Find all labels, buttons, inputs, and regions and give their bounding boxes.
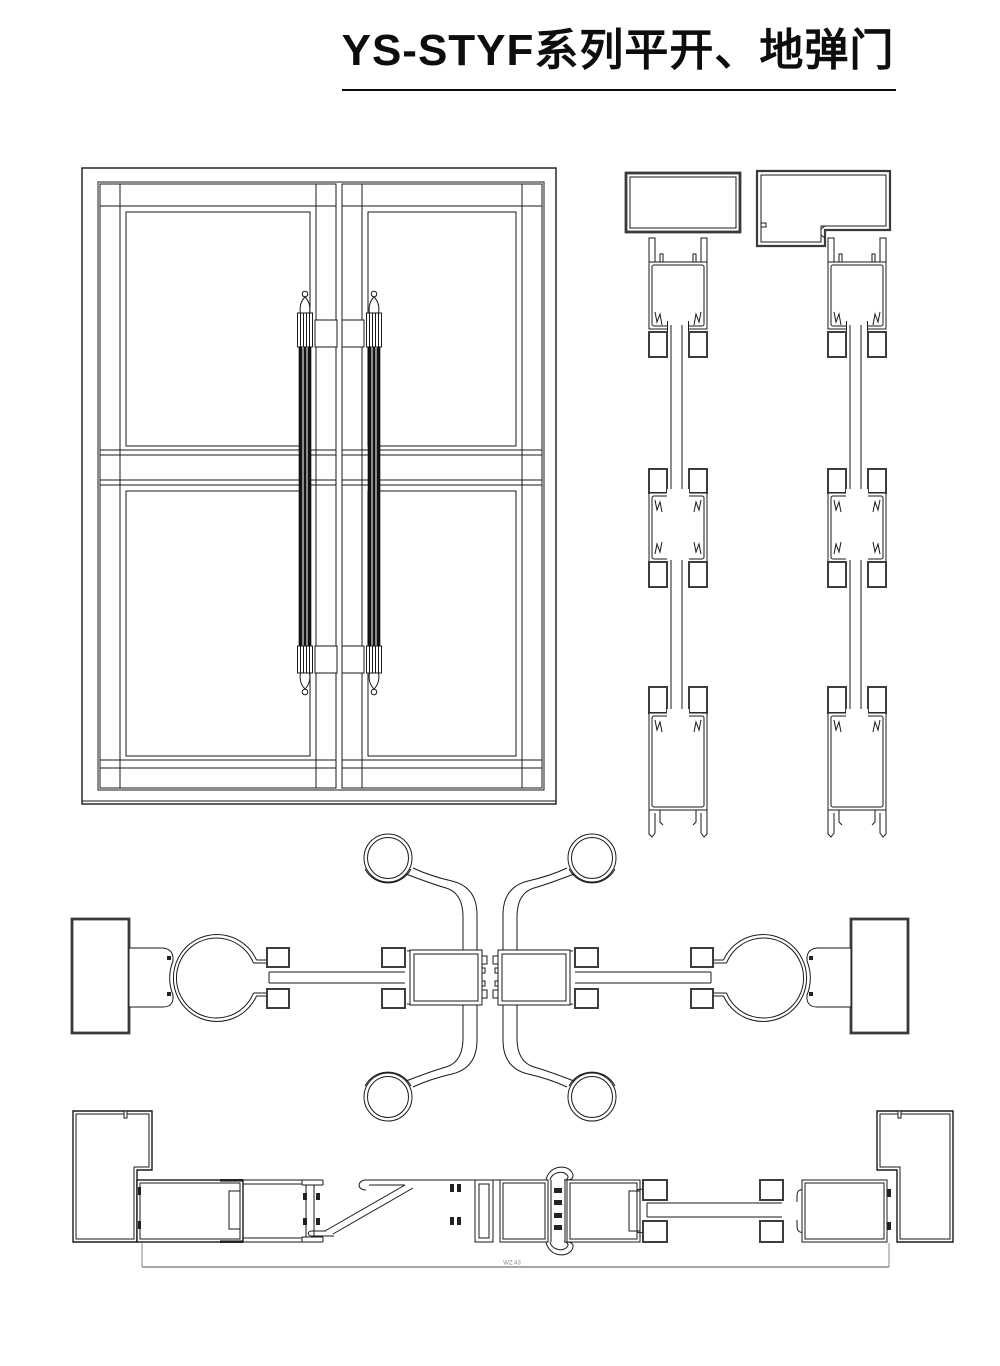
glass-panel-upper-left bbox=[126, 212, 310, 446]
door-frame bbox=[82, 168, 556, 804]
rail-profiles-column-a bbox=[649, 238, 707, 837]
section-top-rail-frame-L bbox=[757, 171, 890, 246]
plan-section-pivot-svg bbox=[60, 825, 920, 1125]
dimension-label: WZ.43 bbox=[503, 1261, 521, 1267]
drawing-sheet: YS-STYF系列平开、地弹门 bbox=[0, 0, 1000, 1366]
glass-panel-upper-right bbox=[368, 212, 516, 446]
threshold-ramp-profile bbox=[308, 1180, 475, 1236]
threshold-glazing bbox=[643, 1180, 805, 1242]
frame-sill-profile bbox=[137, 1179, 243, 1243]
rail-profiles-column-b bbox=[828, 238, 886, 837]
plan-section-threshold: WZ.43 bbox=[60, 1095, 960, 1295]
plan-section-threshold-svg: WZ.43 bbox=[60, 1095, 960, 1295]
title-underline bbox=[342, 89, 896, 91]
dimension-line: WZ.43 bbox=[142, 1243, 889, 1267]
threshold-adapter bbox=[475, 1180, 501, 1242]
section-top-rail-frame bbox=[626, 173, 740, 232]
door-elevation-svg bbox=[70, 160, 570, 820]
vertical-section-views bbox=[612, 160, 912, 850]
glass-panel-lower-left bbox=[126, 491, 310, 756]
sheet-title-block: YS-STYF系列平开、地弹门 bbox=[338, 26, 898, 77]
pull-handle-left bbox=[298, 291, 313, 695]
right-leaf-hinge-profile bbox=[802, 1180, 891, 1242]
threshold-channel bbox=[243, 1180, 323, 1242]
door-elevation-view bbox=[70, 160, 570, 820]
page-title: YS-STYF系列平开、地弹门 bbox=[342, 26, 895, 77]
pull-handle-right bbox=[367, 291, 382, 695]
plan-left-door bbox=[72, 834, 487, 1121]
handle-mounts bbox=[315, 320, 364, 673]
left-leaf-bottom-profile bbox=[500, 1180, 548, 1242]
vertical-sections-svg bbox=[612, 160, 912, 850]
plan-right-door bbox=[493, 834, 908, 1121]
right-leaf-stile-profile bbox=[567, 1180, 644, 1242]
plan-section-pivot bbox=[60, 825, 920, 1125]
glass-panel-lower-right bbox=[368, 491, 516, 756]
